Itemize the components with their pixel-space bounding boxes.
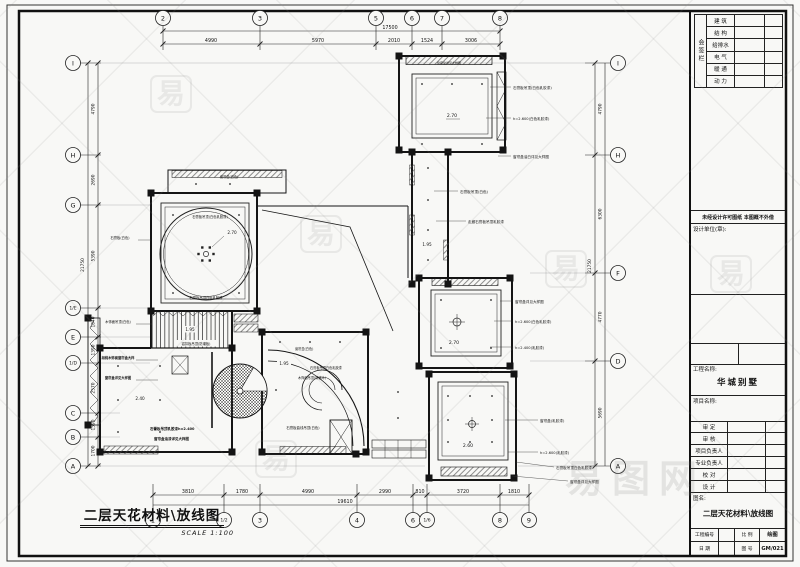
copyright-notice: 未经设计许可图纸 本图概不外借 xyxy=(691,210,785,224)
annotation-label: 石膏板吊顶白色乳胶漆 xyxy=(310,365,343,370)
grid-bubble-label: 8 xyxy=(498,15,502,23)
signature-role-label: 审 核 xyxy=(691,433,728,444)
annotation-label: 窗帘盒(白色) xyxy=(295,346,313,351)
grid-bubble-label: 2 xyxy=(161,15,165,23)
signoff-row: 电 气 xyxy=(707,52,782,64)
signature-role-label: 审 定 xyxy=(691,421,728,432)
annotation-label: 窗帘盒油漆详见大样图 xyxy=(154,436,189,441)
dimension-label: 3006 xyxy=(465,38,477,44)
discipline-label: 暖 通 xyxy=(707,64,735,75)
cad-sheet: 易 易 易 易 易 易图网 xyxy=(0,0,800,567)
item-name-section: 项目名称: xyxy=(691,395,785,422)
signature-row: 审 核 xyxy=(691,433,785,445)
annotation-label: 石膏板吊顶乳胶漆h=2.400 xyxy=(149,426,195,431)
grid-bubble-label: D xyxy=(615,358,620,366)
dimension-label: 2990 xyxy=(379,489,391,495)
watermark-stamp: 易 xyxy=(545,250,587,288)
dimension-label: 1780 xyxy=(236,489,248,495)
dimension-label: 2.40 xyxy=(135,396,145,401)
grid-bubble-label: 1/6 xyxy=(423,518,430,524)
project-name-label: 工程名称: xyxy=(691,363,785,373)
discipline-label: 给排水 xyxy=(707,39,735,50)
grid-bubble-label: B xyxy=(71,434,75,442)
grid-bubble-label: 7 xyxy=(440,15,444,23)
dimension-label: 2570 xyxy=(91,382,97,393)
annotation-label: 走廊石膏板吊顶乳胶漆 xyxy=(468,219,504,224)
dimension-label: 5390 xyxy=(91,250,97,261)
footer-row: 工程编号 比 例 绘图 xyxy=(691,528,785,542)
dimension-label: 1390 xyxy=(91,344,97,355)
caption-title: 二层天花材料\放线图 xyxy=(80,504,224,528)
dimension-label: 21750 xyxy=(587,259,593,273)
annotation-label: 石膏板吊顶(白色乳胶漆) xyxy=(513,85,552,90)
signoff-row: 给排水 xyxy=(707,39,782,51)
annotation-label: 窗帘盒详见大样图 xyxy=(437,60,461,65)
grid-bubble-label: I xyxy=(617,60,619,68)
footer-cell xyxy=(719,542,735,555)
annotation-label: 窗帘盒(白色) xyxy=(220,174,238,179)
annotation-label: 石膏板曲线吊顶(白色) xyxy=(286,425,320,430)
dimension-label: 2.70 xyxy=(447,113,457,119)
annotation-label: h=2.600(白色乳胶漆) xyxy=(513,116,550,121)
dimension-label: 1.95 xyxy=(185,327,195,332)
dimension-label: 5970 xyxy=(312,38,324,44)
annotation-label: 石膏板吊顶(白色) xyxy=(460,189,489,194)
dimension-label: 1.95 xyxy=(279,361,289,366)
grid-bubble-label: 1/D xyxy=(69,361,77,367)
dimension-label: 2.60 xyxy=(463,443,473,449)
dimension-label: 1700 xyxy=(91,445,97,456)
grid-bubble-label: G xyxy=(70,202,75,210)
footer-cell xyxy=(719,528,735,541)
dimension-label: 1.95 xyxy=(422,242,432,247)
sheet-number-label: 图 号 xyxy=(735,542,760,555)
annotation-label: 窗帘盒详见大样图 xyxy=(515,299,544,304)
scale-label: 比 例 xyxy=(735,528,760,541)
date-label: 日 期 xyxy=(691,542,719,555)
dimension-label: 810 xyxy=(415,489,424,495)
annotation-label: 窗帘盒详见大样图 xyxy=(105,375,132,380)
discipline-label: 结 构 xyxy=(707,27,735,38)
annotation-label: 石膏板吊顶白色乳胶漆 xyxy=(190,295,224,300)
walls xyxy=(88,56,516,480)
signoff-row: 结 构 xyxy=(707,27,782,39)
watermark-stamp: 易 xyxy=(150,75,192,113)
dimension-label: 2010 xyxy=(388,38,400,44)
sheet-number-value: GM/021 xyxy=(760,542,785,555)
caption-scale: SCALE 1:100 xyxy=(42,529,262,537)
signoff-table: 会签栏 建 筑 结 构 给排水 电 气 暖 通 动 力 xyxy=(694,14,783,88)
dimension-label: 19610 xyxy=(337,499,352,505)
dimension-label: 4790 xyxy=(598,103,604,114)
item-name-label: 项目名称: xyxy=(691,395,785,405)
annotation-label: 窗帘盒(乳胶漆) xyxy=(540,418,565,423)
grid-bubble-label: 3 xyxy=(258,15,262,23)
dimension-label: 6300 xyxy=(598,208,604,219)
annotation-label: 木饰面吊顶(胡桃木) xyxy=(298,375,326,380)
dimension-label: 1640 xyxy=(91,316,97,327)
watermark-brand: 易图网 xyxy=(565,448,706,503)
dimension-label: 2.70 xyxy=(449,340,459,346)
grid-bubble-label: F xyxy=(616,270,620,278)
annotation-label: 石膏板吊顶(白色乳胶漆) xyxy=(192,214,228,219)
project-name-value: 华城别墅 xyxy=(691,376,785,388)
grid-bubble-label: 4 xyxy=(355,517,359,525)
title-block-footer: 工程编号 比 例 绘图 日 期 图 号 GM/021 xyxy=(691,528,785,555)
grid-bubble-label: E xyxy=(71,334,75,342)
grid-dimensions-top xyxy=(161,26,503,51)
dimension-label: 2690 xyxy=(91,174,97,185)
signature-row: 审 定 xyxy=(691,421,785,433)
grid-bubble-label: 1/E xyxy=(69,306,76,312)
grid-bubble-label: 8 xyxy=(498,517,502,525)
scale-value: 绘图 xyxy=(760,528,785,541)
annotation-label: h=2.600(白色乳胶漆) xyxy=(515,319,552,324)
grid-bubble-label: I xyxy=(72,60,74,68)
project-number-label: 工程编号 xyxy=(691,528,719,541)
grid-dimensions-left xyxy=(81,61,586,469)
annotation-label: 石膏板(白色) xyxy=(110,235,129,240)
discipline-label: 电 气 xyxy=(707,52,735,63)
dimension-label: 3720 xyxy=(457,489,469,495)
dimension-label: 4770 xyxy=(598,311,604,322)
dimension-label: 3810 xyxy=(182,489,194,495)
dimension-label: 21750 xyxy=(80,258,86,272)
dimension-label: 1810 xyxy=(508,489,520,495)
watermark-stamp: 易 xyxy=(255,440,297,478)
signoff-row: 建 筑 xyxy=(707,15,782,27)
grid-bubble-label: 6 xyxy=(411,517,415,525)
dimension-label: 4790 xyxy=(91,103,97,114)
annotation-label: 胡桃木饰面窗帘盒大样 xyxy=(102,355,136,360)
signoff-row: 动 力 xyxy=(707,76,782,87)
annotation-label: h=2.400(乳胶漆) xyxy=(515,345,545,350)
blank-strip xyxy=(691,343,785,365)
drawing-name-value: 二层天花材料\放线图 xyxy=(691,508,785,519)
annotation-label: 铝扣板吊顶(防潮板) xyxy=(182,341,211,346)
grid-bubble-label: 9 xyxy=(527,517,531,525)
dimension-label: 4990 xyxy=(302,489,314,495)
chandelier-symbol xyxy=(197,246,214,261)
downlights xyxy=(117,83,493,443)
grid-bubble-label: A xyxy=(71,463,76,471)
project-name-section: 工程名称: 华城别墅 xyxy=(691,363,785,396)
signoff-vertical-label: 会签栏 xyxy=(695,15,707,87)
discipline-label: 动 力 xyxy=(707,76,735,87)
watermark-stamp: 易 xyxy=(300,215,342,253)
dimension-label: 1590 xyxy=(91,419,97,430)
grid-bubble-label: H xyxy=(616,152,621,160)
dimension-label: 17500 xyxy=(382,25,397,31)
dimension-label: 1524 xyxy=(421,38,433,44)
annotation-label: 木饰面吊顶(白色) xyxy=(105,319,131,324)
design-unit-label: 设计单位(章): xyxy=(693,227,727,233)
annotation-label: 窗帘盒油白详见大样图 xyxy=(513,154,549,159)
footer-row: 日 期 图 号 GM/021 xyxy=(691,542,785,555)
dimension-label: 4990 xyxy=(205,38,217,44)
grid-bubble-label: 6 xyxy=(410,15,414,23)
grid-bubble-label: 5 xyxy=(374,15,378,23)
grid-bubble-label: H xyxy=(71,152,76,160)
discipline-label: 建 筑 xyxy=(707,15,735,26)
drawing-caption: 二层天花材料\放线图 SCALE 1:100 xyxy=(42,504,262,537)
grid-bubble-label: C xyxy=(71,410,76,418)
signoff-label-text: 会签栏 xyxy=(696,39,705,63)
watermark-stamp: 易 xyxy=(710,255,752,293)
dimension-label: 5690 xyxy=(598,407,604,418)
dimension-label: 2.70 xyxy=(227,230,237,235)
signoff-row: 暖 通 xyxy=(707,64,782,76)
